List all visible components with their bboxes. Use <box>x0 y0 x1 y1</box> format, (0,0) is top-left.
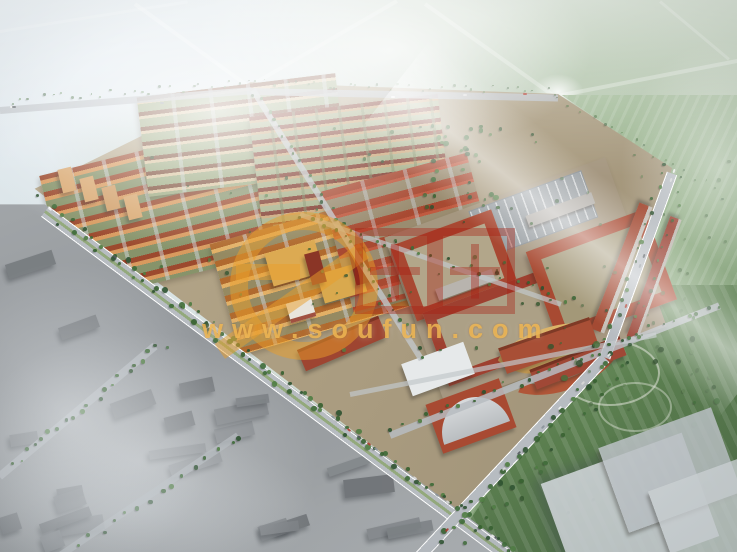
context-building <box>343 474 395 498</box>
context-building <box>5 250 56 279</box>
aerial-rendering: www.soufun.com <box>0 0 737 552</box>
